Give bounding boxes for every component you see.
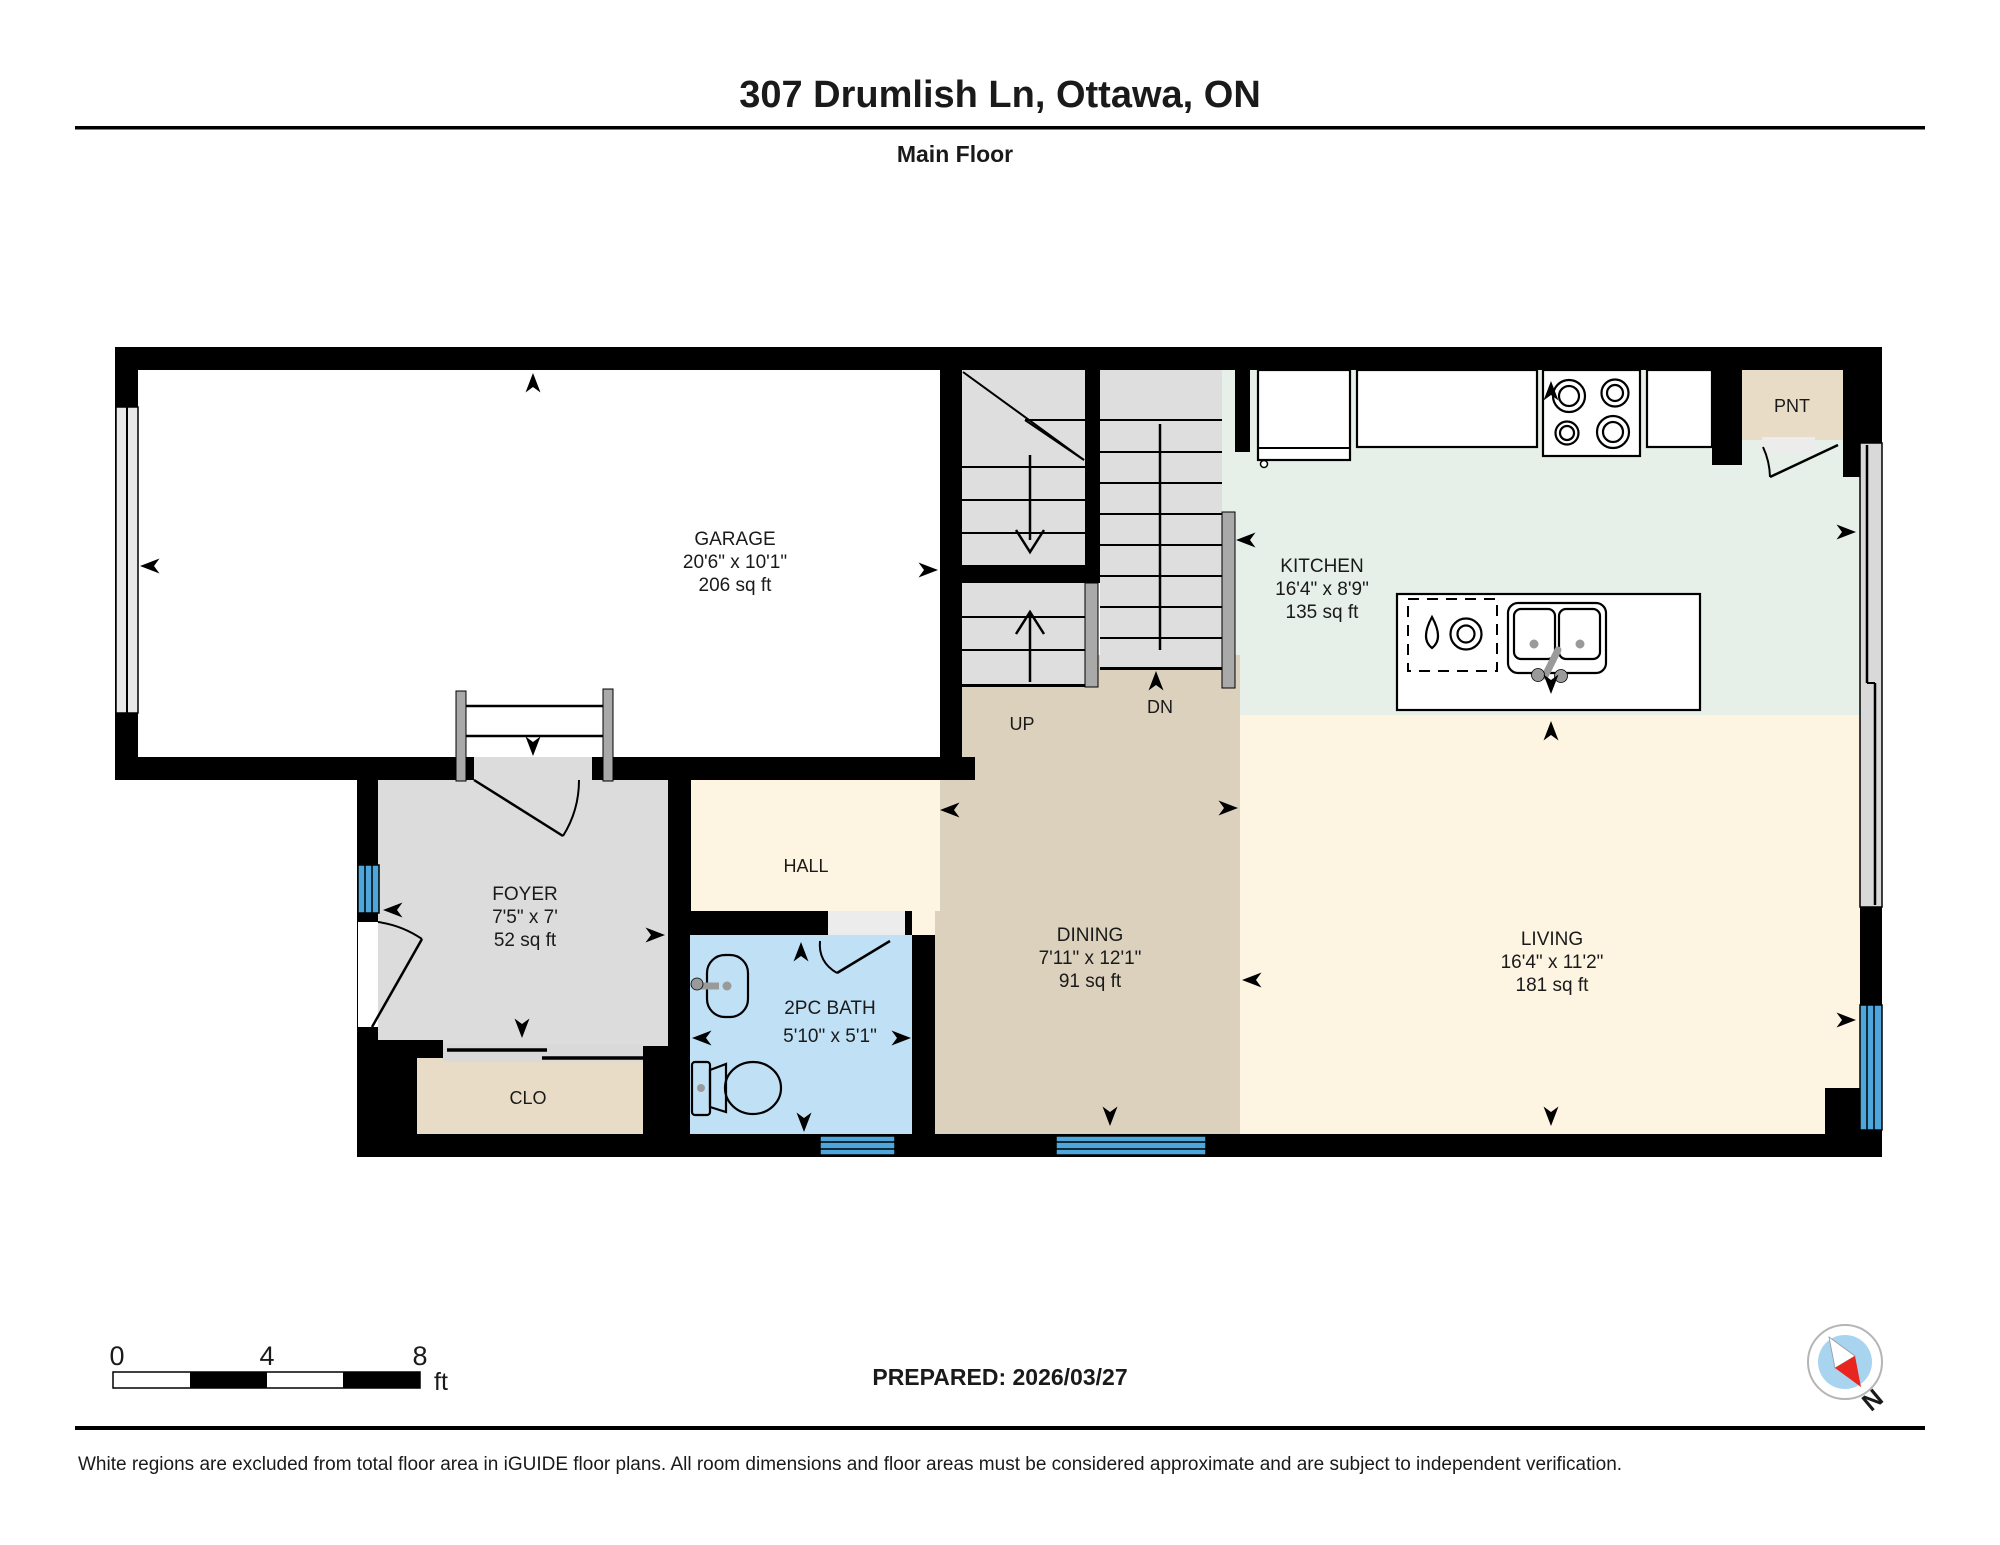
stairs-dn-label: DN [1147, 697, 1173, 717]
footer-divider [75, 1426, 1925, 1430]
foyer-dims: 7'5" x 7' [492, 907, 558, 928]
stairs-up-label: UP [1009, 714, 1034, 734]
stair-railing [1085, 583, 1098, 687]
wall-stairs-kitchen [1235, 370, 1250, 452]
wall-bath-right [912, 935, 935, 1157]
scale-bar: 0 4 8 ft [109, 1341, 447, 1396]
wall-garage-bottom-left [115, 757, 474, 780]
wall-right-mid [1860, 907, 1882, 1005]
stairs-lower-left-flight [962, 583, 1085, 687]
bath-dims: 5'10" x 5'1" [783, 1026, 877, 1047]
floor-plan-canvas: 307 Drumlish Ln, Ottawa, ON Main Floor [0, 0, 2000, 1545]
floor-label: Main Floor [897, 141, 1013, 167]
hall-label: HALL [783, 856, 828, 876]
stair-edge-line [1100, 667, 1222, 670]
wall-garage-stairs [940, 370, 962, 780]
garage-stoop-floor [474, 757, 592, 782]
floor-plan-page: 307 Drumlish Ln, Ottawa, ON Main Floor [0, 0, 2000, 1545]
wall-stairs-separator [962, 565, 1085, 583]
bath-door-opening [828, 911, 905, 935]
fridge [1258, 370, 1350, 468]
dining-dims: 7'11" x 12'1" [1039, 948, 1142, 969]
patio-slider-door [1860, 443, 1882, 907]
kitchen-area: 135 sq ft [1286, 602, 1360, 623]
front-door-opening [358, 922, 378, 1027]
living-window [1860, 1005, 1882, 1130]
wall-foyer-hall [668, 780, 691, 911]
faucet-knob [1555, 670, 1568, 683]
bath-window [820, 1136, 895, 1155]
scale-4: 4 [259, 1341, 274, 1371]
wall-bath-left [668, 935, 690, 1134]
dining-label: DINING [1057, 925, 1124, 946]
foyer-window [358, 865, 379, 913]
header-divider [75, 126, 1925, 130]
garage-floor [138, 370, 940, 757]
pantry-label: PNT [1774, 396, 1810, 416]
stair-railing [1222, 512, 1235, 688]
living-label: LIVING [1521, 929, 1583, 950]
kitchen-island [1397, 594, 1700, 710]
dining-floor-mid [940, 780, 1240, 911]
garage-area: 206 sq ft [699, 575, 773, 596]
header: 307 Drumlish Ln, Ottawa, ON Main Floor [75, 74, 1925, 167]
stoop-railing-post [456, 691, 466, 781]
page-title: 307 Drumlish Ln, Ottawa, ON [739, 74, 1261, 116]
living-dims: 16'4" x 11'2" [1501, 952, 1604, 973]
kitchen-counter [1357, 370, 1537, 447]
garage-label: GARAGE [694, 529, 775, 550]
faucet-knob [1532, 669, 1545, 682]
kitchen-dims: 16'4" x 8'9" [1275, 579, 1369, 600]
foyer-area: 52 sq ft [494, 930, 557, 951]
footer: White regions are excluded from total fl… [75, 1426, 1925, 1475]
stoop-railing-post [603, 689, 613, 781]
dining-area: 91 sq ft [1059, 971, 1122, 992]
wall-closet-left-block [358, 1058, 417, 1135]
scale-8: 8 [412, 1341, 427, 1371]
wall-right-top [1860, 347, 1882, 443]
living-floor [1240, 715, 1860, 1134]
compass: N [1808, 1325, 1889, 1417]
closet-label: CLO [509, 1088, 546, 1108]
living-area: 181 sq ft [1516, 975, 1590, 996]
wall-foyer-closet-left [358, 1040, 443, 1058]
prepared-date: PREPARED: 2026/03/27 [872, 1364, 1127, 1390]
foyer-label: FOYER [492, 884, 557, 905]
dining-window [1056, 1136, 1206, 1155]
scale-bar-segment [190, 1372, 267, 1388]
scale-unit: ft [434, 1368, 448, 1396]
garage-dims: 20'6" x 10'1" [683, 552, 787, 573]
wall-pantry-left [1712, 347, 1742, 465]
kitchen-counter-right [1647, 370, 1712, 447]
wall-garage-bottom-right [592, 757, 975, 780]
stove [1543, 370, 1640, 456]
stair-edge-line [962, 684, 1085, 687]
scale-bar-segment [343, 1372, 420, 1388]
wall-pantry-right [1843, 347, 1860, 477]
pantry-door-opening [1762, 437, 1815, 453]
disclaimer-text: White regions are excluded from total fl… [78, 1454, 1622, 1475]
wall-top [115, 347, 1882, 370]
wall-stairs-mid [1085, 368, 1100, 583]
kitchen-label: KITCHEN [1280, 556, 1363, 577]
scale-0: 0 [109, 1341, 124, 1371]
bath-label: 2PC BATH [784, 998, 876, 1019]
